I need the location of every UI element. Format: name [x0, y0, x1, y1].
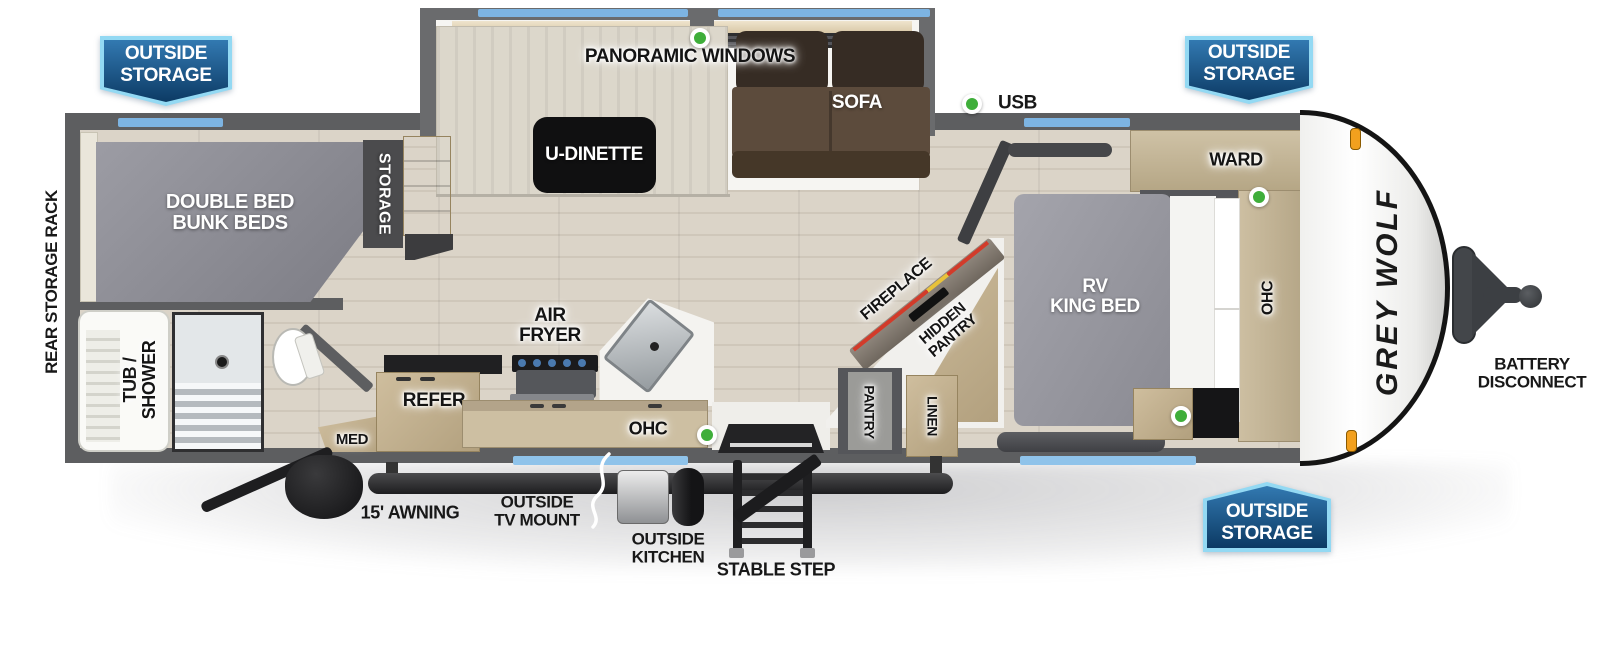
sofa-back-right — [832, 31, 924, 93]
floorplan-scene: U-DINETTE SOFA PANORAMIC WINDOWS DOUBLE … — [0, 0, 1600, 651]
outside-kitchen-box — [672, 468, 704, 526]
bedroom-bottom-window — [1020, 456, 1196, 465]
sofa-label: SOFA — [832, 93, 882, 113]
brand-logo: GREY WOLF — [1372, 188, 1404, 396]
bedroom-ohc-label: OHC — [1261, 281, 1278, 315]
outside-tv-mount-label: OUTSIDETV MOUNT — [494, 494, 580, 531]
kitchen-ohc — [462, 400, 708, 448]
step-foot-left — [729, 548, 744, 558]
marker-kitchen-ohc — [697, 425, 717, 445]
marker-panoramic-windows — [690, 28, 710, 48]
panoramic-window-left — [478, 9, 688, 17]
tub-shower-label: TUB /SHOWER — [121, 341, 159, 420]
outside-storage-badge-top-right: OUTSIDESTORAGE — [1185, 36, 1313, 104]
rear-storage-rack-label: REAR STORAGE RACK — [43, 190, 61, 374]
air-fryer-label: AIRFRYER — [505, 306, 595, 346]
hitch-coupler-knob — [1519, 285, 1542, 308]
usb-label: USB — [998, 94, 1037, 115]
panoramic-label: PANORAMIC WINDOWS — [585, 47, 795, 67]
burner-4 — [563, 359, 571, 367]
tongue-cover — [285, 455, 363, 519]
entry-mat-tread — [730, 443, 812, 447]
outside-storage-badge-top-left: OUTSIDESTORAGE — [100, 36, 232, 106]
step-rung-4 — [742, 522, 803, 528]
marker-bedroom — [1171, 406, 1191, 426]
marker-light-top — [1350, 128, 1361, 150]
burner-3 — [548, 359, 556, 367]
stable-step-label: STABLE STEP — [717, 560, 835, 579]
refer-handle-1 — [396, 377, 411, 381]
pillow-seam — [1214, 308, 1240, 310]
bunk-steps-cabinet — [403, 136, 451, 236]
refer-handle-2 — [420, 377, 435, 381]
pantry-label: PANTRY — [862, 385, 877, 439]
step-rung-5 — [742, 538, 803, 544]
burner-1 — [518, 359, 526, 367]
battery-disconnect-label: BATTERYDISCONNECT — [1478, 356, 1586, 393]
ohc-handle-1 — [530, 404, 544, 408]
dinette-floor-seam — [436, 194, 730, 197]
dinette-label: U-DINETTE — [545, 145, 643, 165]
slideout-left-wall — [420, 8, 436, 136]
shower-glass — [172, 312, 264, 452]
bunk-label: DOUBLE BEDBUNK BEDS — [130, 192, 330, 234]
panoramic-window-right — [718, 9, 930, 17]
ohc-handle-2 — [552, 404, 566, 408]
bunk-headboard — [80, 132, 98, 302]
tub-bench-lines — [86, 330, 120, 442]
marker-usb — [962, 94, 982, 114]
ohc-handle-3 — [648, 404, 662, 408]
king-bed-label: RVKING BED — [1030, 277, 1160, 317]
linen-label: LINEN — [925, 396, 940, 436]
burner-5 — [578, 359, 586, 367]
refer-label: REFER — [403, 391, 465, 411]
kitchen-ohc-label: OHC — [629, 419, 668, 438]
outside-kitchen-label: OUTSIDEKITCHEN — [632, 531, 705, 568]
med-label: MED — [336, 432, 368, 448]
sink-drain — [650, 342, 659, 351]
bedroom-tv — [1008, 143, 1112, 157]
sofa-front — [732, 151, 930, 178]
burner-2 — [533, 359, 541, 367]
tv-mount-cord — [583, 452, 617, 530]
storage-label: STORAGE — [375, 153, 392, 235]
shower-glass-stripes — [175, 383, 261, 449]
awning-mount-stub-right — [930, 456, 942, 474]
marker-shelf — [1249, 187, 1269, 207]
awning-label: 15' AWNING — [361, 503, 460, 522]
shower-drain — [215, 355, 229, 369]
bedroom-ohc — [1238, 190, 1304, 442]
hitch-coupler-bar — [1483, 287, 1523, 303]
marker-light-bottom — [1346, 430, 1357, 452]
step-foot-right — [800, 548, 815, 558]
outside-storage-badge-bottom-right: OUTSIDESTORAGE — [1203, 482, 1331, 552]
outside-tv-box — [617, 470, 669, 524]
entry-mat — [718, 424, 824, 453]
bedroom-top-window — [1024, 118, 1130, 127]
bunk-window — [118, 118, 223, 127]
ward-label: WARD — [1209, 150, 1262, 169]
nightstand-tv — [1193, 388, 1239, 438]
